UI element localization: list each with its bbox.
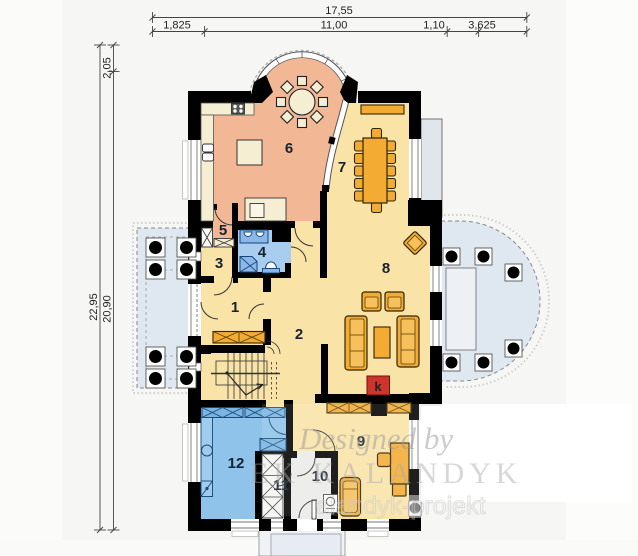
svg-text:EK KALANDYK: EK KALANDYK	[250, 457, 522, 490]
svg-text:4: 4	[258, 244, 267, 261]
svg-text:7: 7	[338, 159, 346, 176]
svg-text:3,625: 3,625	[468, 20, 496, 32]
svg-text:6: 6	[285, 140, 293, 157]
svg-text:8: 8	[382, 260, 390, 277]
svg-text:Designed by: Designed by	[298, 421, 453, 456]
svg-text:2: 2	[295, 326, 303, 343]
svg-text:5: 5	[219, 222, 227, 239]
svg-text:17,55: 17,55	[325, 5, 353, 17]
svg-text:2,05: 2,05	[102, 57, 114, 78]
svg-text:1,825: 1,825	[163, 20, 191, 32]
svg-text:alandyk-projekt: alandyk-projekt	[316, 492, 486, 520]
svg-text:1,10: 1,10	[423, 20, 444, 32]
svg-text:20,90: 20,90	[102, 295, 114, 323]
svg-text:12: 12	[228, 455, 245, 472]
svg-text:3: 3	[215, 255, 223, 272]
svg-text:11,00: 11,00	[321, 20, 348, 32]
svg-text:1: 1	[231, 299, 239, 316]
svg-text:k: k	[374, 379, 382, 394]
svg-text:22,95: 22,95	[88, 293, 100, 321]
